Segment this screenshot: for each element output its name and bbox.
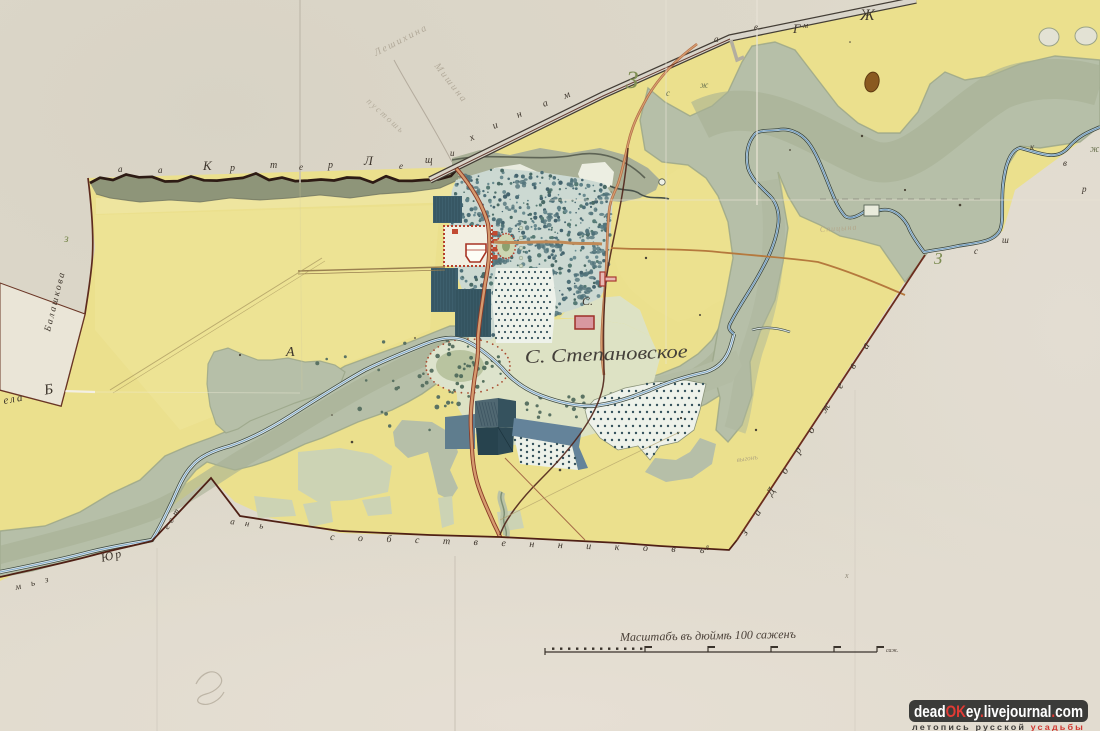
svg-text:Ж: Ж	[859, 7, 876, 24]
svg-text:а: а	[158, 165, 163, 175]
svg-text:е: е	[399, 161, 403, 171]
svg-text:З: З	[626, 67, 638, 94]
svg-text:р: р	[229, 163, 235, 174]
svg-text:и: и	[450, 148, 455, 158]
svg-text:р: р	[1081, 184, 1087, 194]
svg-text:deadOKey.livejournal.com: deadOKey.livejournal.com	[914, 703, 1083, 721]
svg-text:щ: щ	[425, 155, 433, 166]
svg-text:С.: С.	[582, 294, 593, 308]
svg-text:ш: ш	[1002, 235, 1009, 245]
svg-text:летопись русской усадьбы: летопись русской усадьбы	[912, 722, 1085, 731]
svg-text:Л: Л	[363, 153, 374, 168]
svg-text:З: З	[934, 249, 943, 268]
svg-text:е: е	[299, 162, 303, 172]
svg-text:в: в	[754, 22, 758, 32]
svg-text:ж: ж	[700, 80, 709, 90]
svg-text:в: в	[1063, 158, 1067, 168]
svg-text:Г: Г	[792, 21, 801, 36]
svg-text:а: а	[714, 34, 719, 44]
svg-text:х: х	[844, 571, 849, 580]
svg-text:з: з	[63, 231, 69, 245]
svg-text:л: л	[704, 542, 709, 552]
svg-text:ж: ж	[1090, 144, 1100, 155]
svg-text:саж.: саж.	[886, 648, 899, 654]
svg-text:К: К	[202, 158, 213, 173]
svg-text:А: А	[285, 345, 295, 360]
svg-text:а: а	[118, 164, 123, 174]
svg-text:т: т	[270, 160, 277, 171]
svg-text:с: с	[974, 246, 978, 256]
svg-text:м: м	[802, 21, 808, 30]
svg-text:с: с	[666, 88, 670, 98]
svg-text:р: р	[327, 160, 333, 171]
